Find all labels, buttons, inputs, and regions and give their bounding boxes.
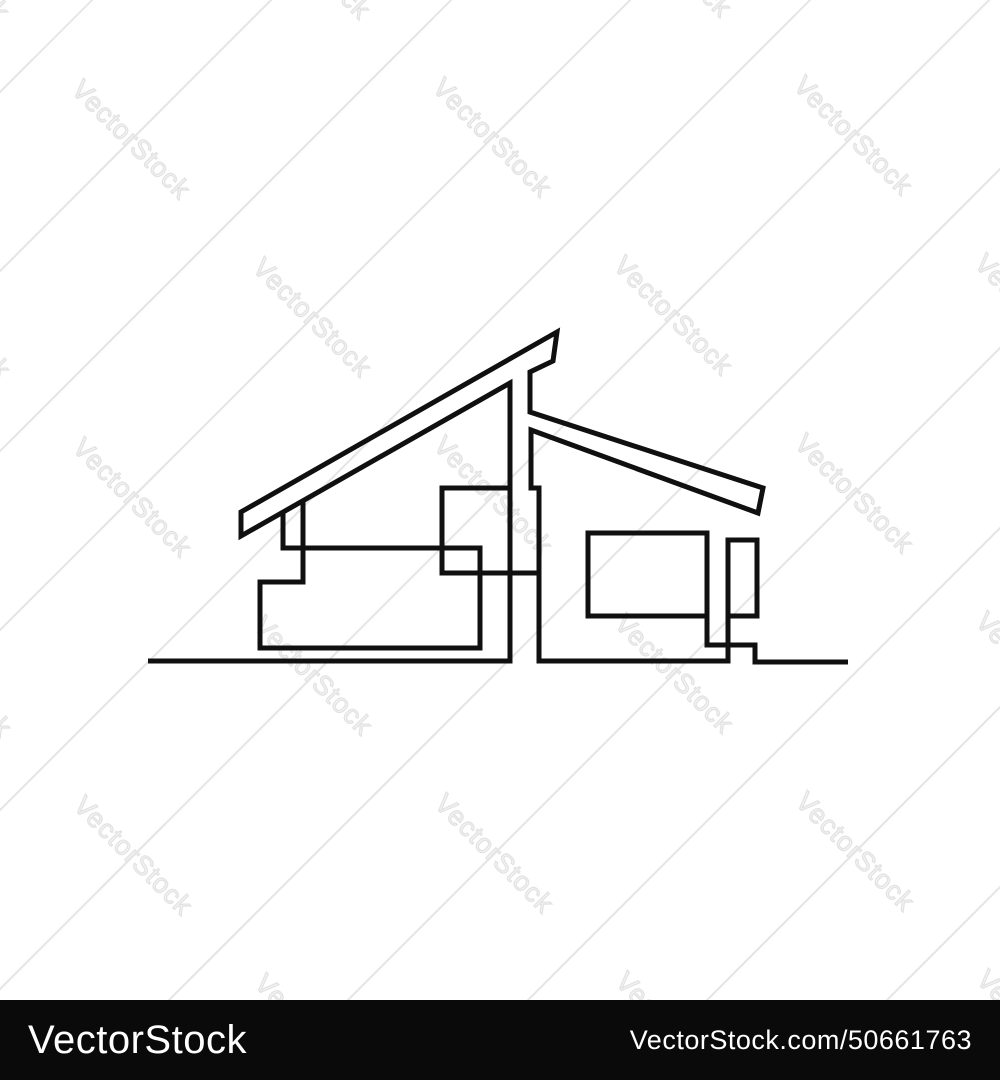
- house-line-art: [0, 0, 1000, 1080]
- stock-image-preview: VectorStockVectorStockVectorStockVectorS…: [0, 0, 1000, 1080]
- footer-bar: VectorStock VectorStock.com/50661763: [0, 1000, 1000, 1080]
- image-url-text: VectorStock.com/50661763: [630, 1025, 972, 1056]
- house-gable-lines: [442, 488, 539, 573]
- vectorstock-logo: VectorStock: [28, 1018, 247, 1063]
- house-outline-main: [148, 332, 763, 661]
- house-window: [588, 533, 707, 616]
